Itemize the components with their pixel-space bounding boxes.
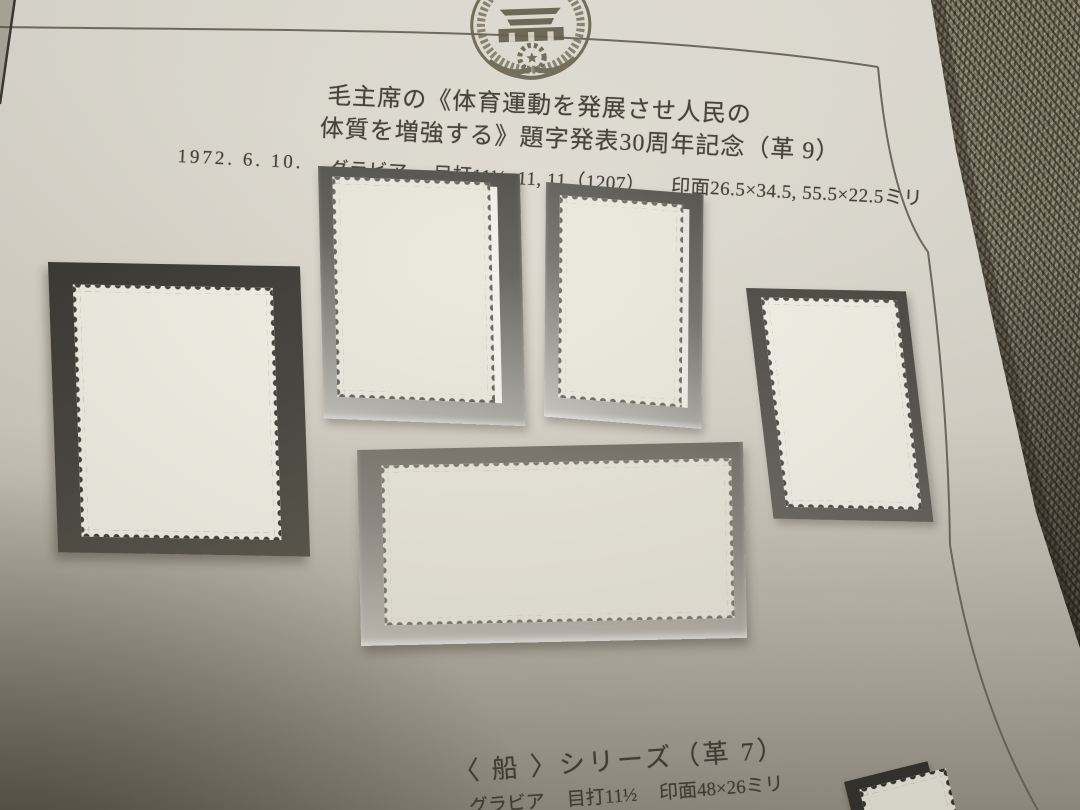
blank-stamp-bottom-center: [381, 458, 734, 625]
series2-perforation: 目打11½: [566, 780, 638, 810]
blank-stamp-top-right: [558, 195, 683, 407]
stamp-mount-top-center: [318, 166, 526, 426]
stamp-mount-top-right: [544, 182, 704, 429]
stamp-mount-right: [746, 288, 933, 522]
blank-stamp-right: [761, 297, 922, 509]
emblem-ribbon-bottom: [516, 74, 549, 78]
emblem-tiananmen-gate: [498, 7, 564, 42]
china-national-emblem-icon: [446, 0, 616, 89]
blank-stamp-partial-bottom: [859, 768, 962, 810]
blank-stamp-top-center: [332, 177, 495, 403]
stamp-mount-bottom-center: [357, 442, 747, 646]
photo-scene: 毛主席の《体育運動を発展させ人民の 体質を増強する》題字発表30周年記念（革 9…: [0, 0, 1080, 810]
emblem-gear-star: [526, 52, 538, 63]
blank-stamp-left: [73, 284, 282, 540]
stamp-mount-left: [48, 262, 310, 557]
